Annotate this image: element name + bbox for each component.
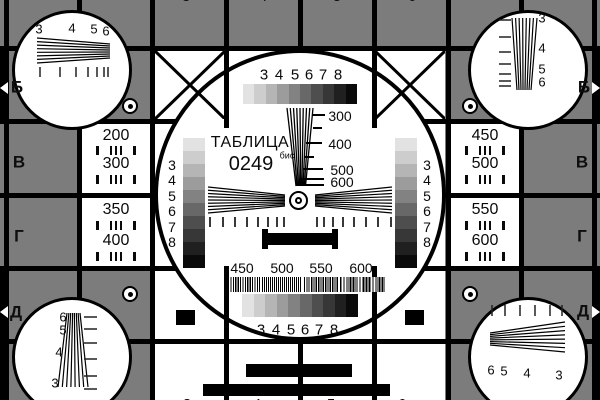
frequency-label: 500 bbox=[270, 261, 293, 275]
grayscale-step bbox=[277, 84, 288, 104]
frequency-label: 300 bbox=[103, 156, 130, 172]
grayscale-step bbox=[265, 294, 277, 317]
wedge-number: 5 bbox=[59, 324, 66, 337]
diagonal-cross-icon bbox=[375, 51, 445, 119]
scale-number: 3 bbox=[260, 68, 268, 83]
scale-number: 3 bbox=[168, 158, 176, 172]
scale-number: 4 bbox=[275, 68, 283, 83]
scale-number: 7 bbox=[423, 220, 431, 234]
tick-marks bbox=[84, 317, 97, 389]
resolution-wedge-horizontal-icon bbox=[205, 183, 287, 217]
scale-number: 5 bbox=[291, 68, 299, 83]
grayscale-step bbox=[183, 255, 205, 268]
black-bar bbox=[246, 364, 352, 377]
wedge-number: 4 bbox=[523, 367, 530, 380]
scale-number: 6 bbox=[423, 204, 431, 218]
wedge-lines bbox=[37, 38, 110, 63]
grayscale-step bbox=[183, 229, 205, 242]
tick-group bbox=[82, 220, 150, 230]
grayscale-step bbox=[395, 203, 417, 216]
grayscale-step bbox=[312, 294, 324, 317]
tick-marks bbox=[210, 217, 284, 227]
scale-number: 4 bbox=[272, 323, 280, 338]
right-arrow-icon bbox=[592, 82, 600, 94]
tick-mark bbox=[133, 146, 136, 155]
tick-mark bbox=[465, 252, 468, 261]
tick-triple bbox=[110, 175, 123, 184]
scale-number: 6 bbox=[305, 68, 313, 83]
edge-digit: 4 bbox=[259, 0, 267, 4]
tick-triple bbox=[479, 175, 492, 184]
black-bar-cap bbox=[332, 229, 338, 249]
wedge-tick bbox=[303, 168, 323, 170]
row-letter: Б bbox=[11, 79, 23, 96]
wedge-number: 3 bbox=[555, 369, 562, 382]
diagonal-cross-icon bbox=[155, 51, 225, 119]
tick-group bbox=[451, 220, 519, 230]
scale-number: 5 bbox=[287, 323, 295, 338]
tick-mark bbox=[96, 252, 99, 261]
scale-number: 8 bbox=[330, 323, 338, 338]
wedge-lines bbox=[208, 187, 285, 213]
grayscale-step bbox=[323, 294, 335, 317]
target-dot bbox=[468, 292, 473, 297]
grayscale-step bbox=[266, 84, 277, 104]
grayscale-step bbox=[335, 294, 347, 317]
wedge-tick bbox=[300, 178, 324, 180]
tick-group bbox=[451, 145, 519, 155]
grayscale-step bbox=[346, 294, 358, 317]
resolution-wedge-vertical-icon bbox=[12, 297, 132, 400]
row-letter: Г bbox=[14, 228, 24, 245]
tick-triple bbox=[479, 252, 492, 261]
frequency-grating bbox=[304, 277, 338, 292]
wedge-number: 4 bbox=[68, 22, 75, 35]
registration-target-icon bbox=[289, 191, 308, 210]
tv-test-card: 3 4 5 6 7 8 300 400 500 600 ТАБЛИЦА 0249… bbox=[0, 0, 600, 400]
tick-group bbox=[451, 174, 519, 184]
black-bar-cap bbox=[262, 229, 268, 249]
scale-number: 7 bbox=[168, 220, 176, 234]
grayscale-step bbox=[395, 190, 417, 203]
edge-digit: 5 bbox=[333, 0, 341, 4]
wedge-tick bbox=[305, 156, 314, 158]
grayscale-bar-top bbox=[243, 84, 357, 104]
tick-mark bbox=[502, 252, 505, 261]
grayscale-step bbox=[395, 255, 417, 268]
right-arrow-icon bbox=[592, 306, 600, 318]
grayscale-step bbox=[395, 138, 417, 151]
frequency-label: 600 bbox=[472, 233, 499, 249]
grayscale-step bbox=[277, 294, 289, 317]
grayscale-step bbox=[288, 294, 300, 317]
edge-bar bbox=[0, 266, 6, 400]
grayscale-step bbox=[395, 242, 417, 255]
resolution-wedge-vertical-icon bbox=[468, 10, 588, 130]
wedge-number: 6 bbox=[538, 76, 545, 89]
scale-number: 8 bbox=[168, 235, 176, 249]
wedge-number: 6 bbox=[102, 25, 109, 38]
scale-number: 3 bbox=[257, 323, 265, 338]
scale-number: 5 bbox=[168, 189, 176, 203]
grayscale-step bbox=[334, 84, 345, 104]
grayscale-step bbox=[346, 84, 357, 104]
grayscale-step bbox=[183, 242, 205, 255]
scale-number: 6 bbox=[301, 323, 309, 338]
grayscale-step bbox=[254, 84, 265, 104]
tick-triple bbox=[110, 221, 123, 230]
wedge-tick bbox=[312, 114, 325, 116]
edge-bar bbox=[594, 266, 600, 400]
tick-triple bbox=[110, 252, 123, 261]
grayscale-step bbox=[311, 84, 322, 104]
frequency-label: 450 bbox=[230, 261, 253, 275]
tick-mark bbox=[465, 175, 468, 184]
frequency-grating bbox=[340, 277, 385, 292]
edge-digit: 3 bbox=[182, 0, 190, 4]
grayscale-step bbox=[254, 294, 266, 317]
tick-triple bbox=[110, 146, 123, 155]
tick-mark bbox=[502, 221, 505, 230]
grayscale-step bbox=[183, 164, 205, 177]
wedge-lines bbox=[287, 108, 313, 186]
tick-row bbox=[311, 215, 396, 229]
scale-number: 4 bbox=[168, 173, 176, 187]
registration-target-icon bbox=[462, 98, 478, 114]
left-arrow-icon bbox=[0, 306, 8, 318]
tick-group bbox=[82, 145, 150, 155]
frequency-label: 200 bbox=[103, 128, 130, 144]
row-letter: Д bbox=[577, 303, 589, 320]
frequency-label: 300 bbox=[328, 109, 351, 123]
target-dot bbox=[468, 104, 473, 109]
black-bar bbox=[265, 233, 335, 245]
resolution-wedge-horizontal-icon bbox=[313, 183, 395, 217]
tick-mark bbox=[133, 252, 136, 261]
scale-number: 5 bbox=[423, 189, 431, 203]
registration-target-icon bbox=[122, 98, 138, 114]
edge-digit: 6 bbox=[408, 0, 416, 4]
target-dot bbox=[128, 292, 133, 297]
target-inner-ring bbox=[295, 197, 302, 204]
grayscale-step bbox=[395, 216, 417, 229]
wedge-number: 3 bbox=[51, 377, 58, 390]
grayscale-bar-right bbox=[395, 138, 417, 268]
row-letter: Г bbox=[577, 228, 587, 245]
tick-triple bbox=[479, 146, 492, 155]
tick-mark bbox=[502, 146, 505, 155]
black-square bbox=[176, 310, 195, 325]
wedge-lines bbox=[490, 322, 565, 352]
grayscale-step bbox=[183, 177, 205, 190]
tick-marks bbox=[40, 67, 108, 77]
grayscale-bar-bottom bbox=[242, 294, 358, 317]
grayscale-step bbox=[242, 294, 254, 317]
wedge-number: 4 bbox=[538, 42, 545, 55]
left-arrow-icon bbox=[0, 82, 8, 94]
wedge-lines bbox=[315, 187, 392, 213]
tick-mark bbox=[96, 175, 99, 184]
tick-triple bbox=[479, 221, 492, 230]
row-letter: Б bbox=[578, 79, 590, 96]
wedge-tick bbox=[313, 127, 322, 129]
frequency-label: 550 bbox=[309, 261, 332, 275]
grayscale-step bbox=[243, 84, 254, 104]
frequency-label: 350 bbox=[103, 202, 130, 218]
grayscale-step bbox=[183, 216, 205, 229]
card-title: ТАБЛИЦА bbox=[211, 135, 289, 151]
wedge-number: 5 bbox=[90, 23, 97, 36]
grayscale-step bbox=[300, 84, 311, 104]
tick-mark bbox=[133, 175, 136, 184]
tick-marks bbox=[499, 20, 511, 86]
scale-number: 7 bbox=[319, 68, 327, 83]
row-letter: Д bbox=[10, 304, 22, 321]
diagonal-lines bbox=[375, 51, 445, 119]
frequency-label: 400 bbox=[103, 233, 130, 249]
tick-mark bbox=[465, 221, 468, 230]
scale-number: 3 bbox=[423, 158, 431, 172]
frequency-label: 450 bbox=[472, 128, 499, 144]
card-code: 0249 bbox=[229, 154, 274, 174]
registration-target-icon bbox=[462, 286, 478, 302]
grayscale-step bbox=[395, 151, 417, 164]
tick-mark bbox=[96, 146, 99, 155]
tick-mark bbox=[133, 221, 136, 230]
tick-mark bbox=[465, 146, 468, 155]
wedge-number: 3 bbox=[35, 23, 42, 36]
scale-number: 4 bbox=[423, 173, 431, 187]
tick-marks bbox=[317, 217, 391, 227]
black-square bbox=[405, 310, 424, 325]
grayscale-step bbox=[183, 151, 205, 164]
scale-number: 8 bbox=[334, 68, 342, 83]
grayscale-bar-left bbox=[183, 138, 205, 268]
grayscale-step bbox=[395, 164, 417, 177]
grayscale-step bbox=[323, 84, 334, 104]
diagonal-lines bbox=[155, 51, 225, 119]
frequency-label: 500 bbox=[472, 156, 499, 172]
card-code-suffix: бис bbox=[280, 152, 295, 161]
frequency-label: 600 bbox=[349, 261, 372, 275]
tick-mark bbox=[502, 175, 505, 184]
tick-mark bbox=[96, 221, 99, 230]
tick-row bbox=[205, 215, 290, 229]
scale-number: 6 bbox=[168, 204, 176, 218]
grayscale-step bbox=[300, 294, 312, 317]
grayscale-step bbox=[289, 84, 300, 104]
wedge-tick bbox=[306, 142, 322, 144]
grayscale-step bbox=[395, 229, 417, 242]
target-dot bbox=[128, 104, 133, 109]
registration-target-icon bbox=[122, 286, 138, 302]
wedge-lines bbox=[512, 18, 537, 90]
frequency-grating bbox=[262, 277, 302, 292]
grayscale-step bbox=[183, 138, 205, 151]
tick-group bbox=[451, 251, 519, 261]
tick-group bbox=[82, 251, 150, 261]
frequency-label: 400 bbox=[328, 137, 351, 151]
tick-group bbox=[82, 174, 150, 184]
row-letter: В bbox=[13, 154, 25, 171]
grayscale-step bbox=[395, 177, 417, 190]
wedge-number: 6 bbox=[487, 364, 494, 377]
scale-number: 7 bbox=[315, 323, 323, 338]
grayscale-step bbox=[183, 190, 205, 203]
wedge-number: 5 bbox=[500, 365, 507, 378]
wedge-number: 4 bbox=[55, 346, 62, 359]
row-letter: В bbox=[576, 154, 588, 171]
wedge-number: 3 bbox=[538, 12, 545, 25]
resolution-wedge-horizontal-icon bbox=[468, 297, 588, 400]
grayscale-step bbox=[183, 203, 205, 216]
frequency-label: 550 bbox=[472, 202, 499, 218]
scale-number: 8 bbox=[423, 235, 431, 249]
black-bar bbox=[203, 384, 390, 396]
frequency-grating bbox=[228, 277, 260, 292]
tick-marks bbox=[492, 305, 562, 316]
